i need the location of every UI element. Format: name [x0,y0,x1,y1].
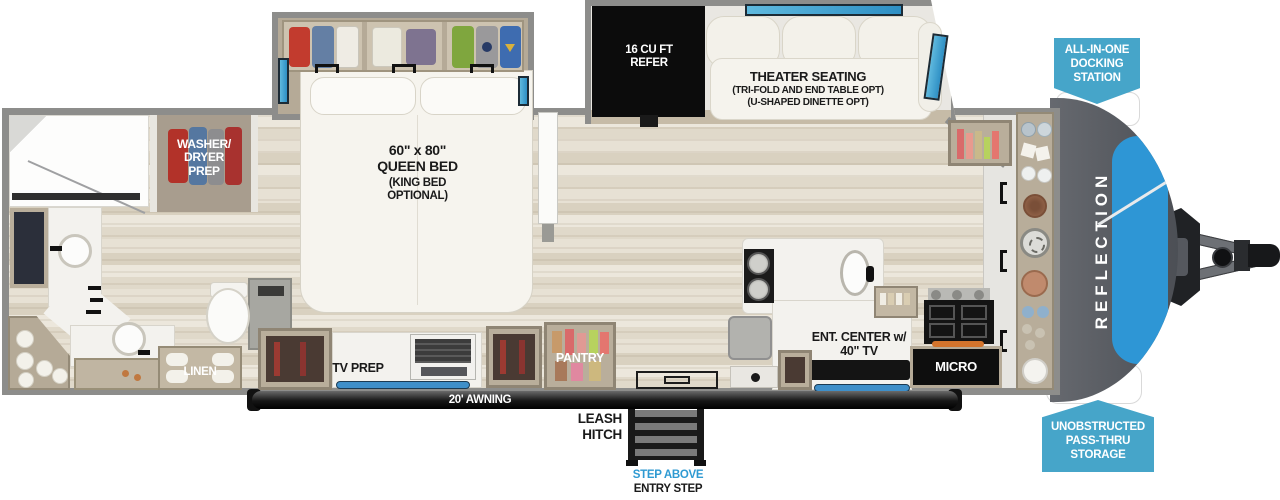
slide-latch [392,64,416,73]
step-rail [697,408,704,462]
dish-cup [1037,306,1049,318]
dish-napkin [1035,146,1050,161]
door-post [542,224,554,242]
book-spine [957,129,964,159]
dresser-right [486,326,542,388]
step-above-label: STEP ABOVE [614,469,722,482]
clothing-item-folded-stack [406,29,436,65]
bed-pillow [310,77,416,115]
linen-towel [166,353,188,366]
cabinet-knob [122,370,129,377]
shower-threshold [12,193,140,200]
book-spine [992,131,999,159]
step-rail [628,408,635,462]
pantry-item [552,331,562,353]
dish-jar [1022,324,1032,334]
island-faucet [866,266,874,282]
clothing-item-white-stack [372,27,402,67]
linen-towel [212,353,234,366]
entry-door-mat-inner [664,376,690,384]
rolled-towel [36,360,53,377]
step-treads [635,410,697,460]
pantry-label: PANTRY [544,351,616,365]
slide-latch [470,64,494,73]
micro-label: MICRO [910,360,1002,375]
rolled-towel [52,368,68,384]
cooktop [924,300,994,344]
dresser-clothes [519,340,525,374]
dish-jar [1035,328,1045,338]
cabinet-knob [134,374,141,381]
superman-logo [505,42,515,52]
kettle [751,373,760,382]
counter-door-mark [1000,250,1007,272]
front-cap: REFLECTION [1050,98,1178,402]
dresser-clothes [300,342,306,376]
towel-bar [88,286,101,290]
end-table [730,366,778,388]
bathroom-faucet-front [138,350,150,355]
bedroom-window-left [278,58,289,104]
tv-prep-label: TV PREP [318,361,398,375]
kitchen-sink-bowl [747,252,770,275]
dresser-clothes [274,342,280,376]
burner-cover [931,290,941,300]
hitch-coupler [1248,244,1280,267]
dish-cup [1022,306,1034,318]
towel-bar [86,310,101,314]
bedroom-window-right [518,76,529,106]
dish-plate [1037,168,1052,183]
wardrobe-divider [362,22,367,70]
hitch-jack-knob [1212,247,1233,268]
dish-jar [1025,340,1035,350]
side-chair [728,316,772,360]
dish-brown-bowl [1023,194,1047,218]
laptop-keyboard [415,339,471,363]
leash-hitch-label: LEASH HITCH [548,411,622,443]
bookshelf-cabinet [948,120,1012,166]
nasa-logo [482,42,492,52]
reflection-logo: REFLECTION [1092,110,1112,390]
pantry-item [571,363,583,381]
dresser-left [258,328,332,390]
under-sink-cabinet [74,358,168,390]
spice-rack [874,286,918,318]
rolled-towel [18,372,34,388]
rolled-towel [16,330,34,348]
clothing-item-red-shirt [289,27,310,67]
spice-jar [896,293,902,305]
cabinet-interior [785,357,805,383]
clothing-item-nasa-shirt [476,26,498,68]
dresser-interior [493,334,535,380]
entertainment-tv [806,360,910,380]
counter-door-mark [1000,182,1007,204]
laptop [410,334,476,380]
clothing-item-green-shirt [452,26,474,68]
theater-label: THEATER SEATING (TRI-FOLD AND END TABLE … [696,70,920,108]
bathroom-sink-rear [58,234,92,268]
cabinet-slot [258,286,284,296]
laptop-touchpad [421,367,467,376]
dish-copper-pan [1021,270,1048,297]
awning-bar [252,391,958,409]
dish-bowl [1021,122,1036,137]
cooktop-grate [961,323,987,338]
step-foot [694,460,706,466]
pantry-item [577,333,586,353]
dish-plate [1021,166,1036,181]
step-foot [626,460,638,466]
clothing-item-jeans [312,26,334,68]
queen-bed-label: 60" x 80" QUEEN BED (KING BED OPTIONAL) [330,143,505,203]
tv-prep-window-sill [336,381,470,389]
awning-label: 20' AWNING [420,394,540,407]
entry-step-label: ENTRY STEP [614,483,722,496]
spice-jar [880,293,886,305]
dish-large-plate [1022,358,1048,384]
dresser-clothes [500,340,506,374]
spice-jar [888,293,894,305]
burner-cover [952,290,962,300]
spice-jar [904,293,910,305]
cooktop-grate [961,305,987,320]
front-cap-blue-panel [1112,136,1168,364]
entry-door-mat [636,371,718,389]
cooktop-grate [929,323,955,338]
book-spine [966,133,973,159]
dresser-interior [266,336,324,382]
bed-pillow [420,77,526,115]
dish-napkin [1021,143,1037,159]
rolled-towel [16,352,34,370]
ent-center-label: ENT. CENTER w/ 40" TV [806,330,912,358]
bedroom-sliding-door [538,112,558,224]
refrigerator-base [640,115,658,127]
bathroom-faucet-rear [50,246,62,251]
slide-latch [315,64,339,73]
book-spine [975,131,982,159]
medicine-cabinet [10,208,48,288]
towel-bar [90,298,103,302]
linen-label: LINEN [158,366,242,379]
passthru-storage-badge: UNOBSTRUCTED PASS-THRU STORAGE [1042,400,1154,472]
front-dish-counter [1016,112,1054,390]
burner-cover [974,290,984,300]
floorplan-diagram: REFLECTION WASHER/ DRYER PREP [0,0,1280,500]
clothing-item-fila-shirt [336,26,359,68]
entry-steps [628,408,704,462]
cooktop-grate [929,305,955,320]
dish-dial [1020,228,1050,258]
toilet [206,288,250,344]
wardrobe-divider [442,22,447,70]
clothing-item-superman-shirt [500,26,521,68]
washer-dryer-label: WASHER/ DRYER PREP [158,138,250,178]
kitchen-sink-bowl [747,278,770,301]
refer-label: 16 CU FT REFER [600,44,698,70]
living-window-top [745,4,903,16]
dish-bowl [1037,122,1052,137]
oven-towel-bar [932,341,984,347]
book-spine [984,137,990,159]
